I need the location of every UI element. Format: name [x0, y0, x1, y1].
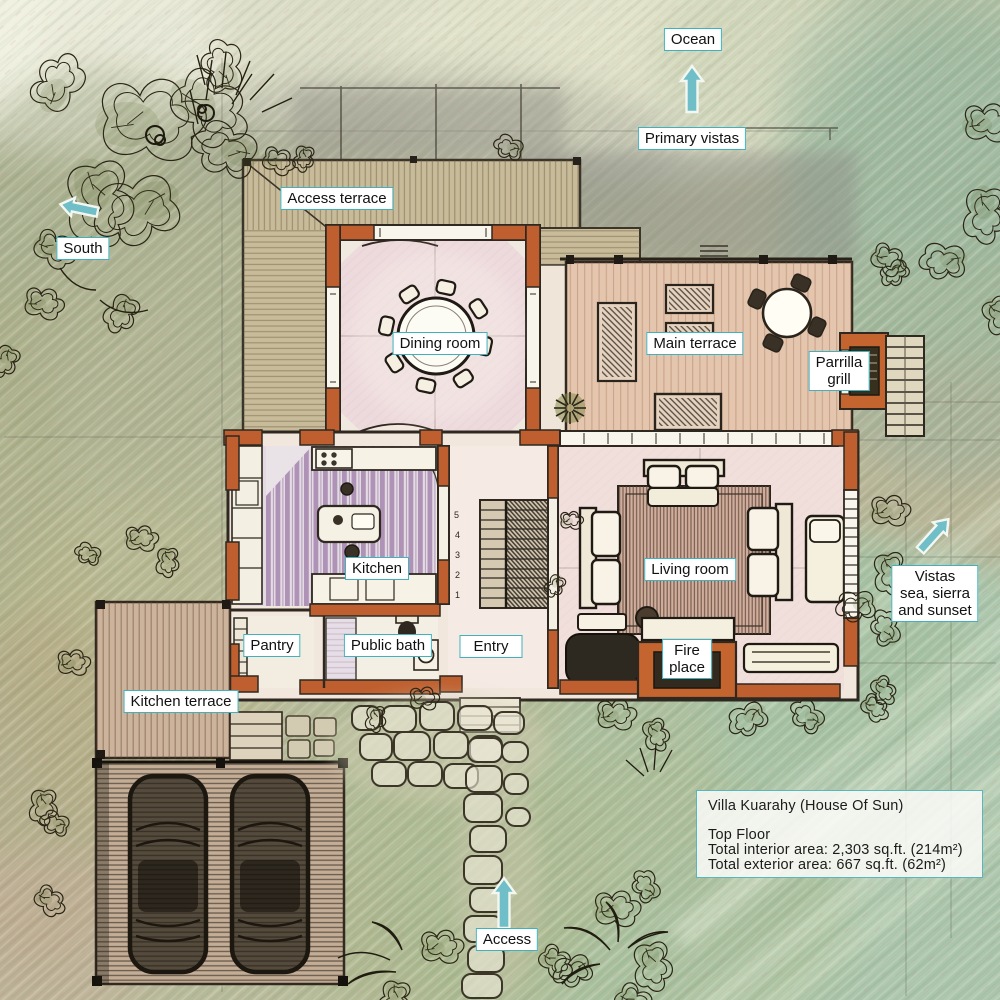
svg-text:3: 3 [455, 550, 460, 560]
svg-text:1: 1 [455, 590, 460, 600]
svg-text:4: 4 [455, 530, 460, 540]
svg-text:5: 5 [454, 510, 459, 520]
svg-text:2: 2 [455, 570, 460, 580]
